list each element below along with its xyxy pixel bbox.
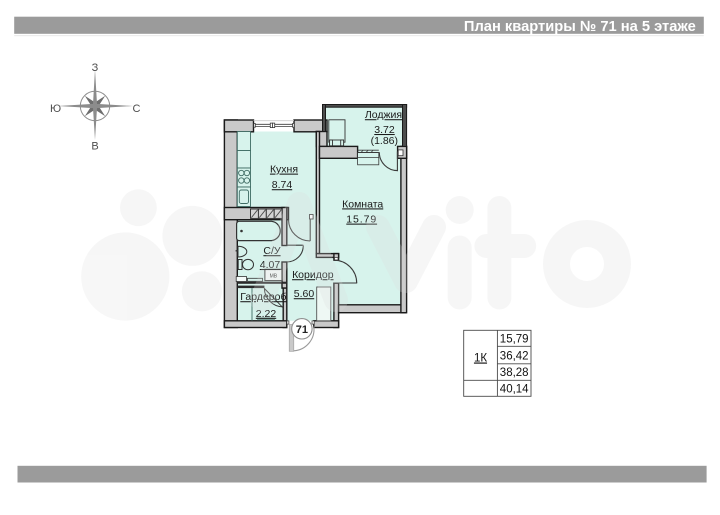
svg-text:Комната: Комната [342,198,383,210]
svg-text:8.74: 8.74 [272,179,293,191]
svg-text:40,14: 40,14 [500,384,529,396]
svg-text:38,28: 38,28 [500,367,529,379]
svg-text:С: С [133,103,141,115]
svg-text:З: З [92,62,99,74]
svg-text:(1.86): (1.86) [371,135,398,147]
svg-text:36,42: 36,42 [500,350,529,362]
svg-text:5.60: 5.60 [294,288,315,300]
svg-text:15,79: 15,79 [500,334,529,346]
svg-text:71: 71 [296,324,308,336]
svg-text:Лоджия: Лоджия [365,109,402,121]
svg-text:В: В [91,141,98,153]
svg-text:Ю: Ю [50,103,61,115]
svg-text:План квартиры № 71 на 5 этаже: План квартиры № 71 на 5 этаже [464,19,696,35]
svg-text:1К: 1К [474,353,487,365]
svg-text:Кухня: Кухня [270,164,298,176]
